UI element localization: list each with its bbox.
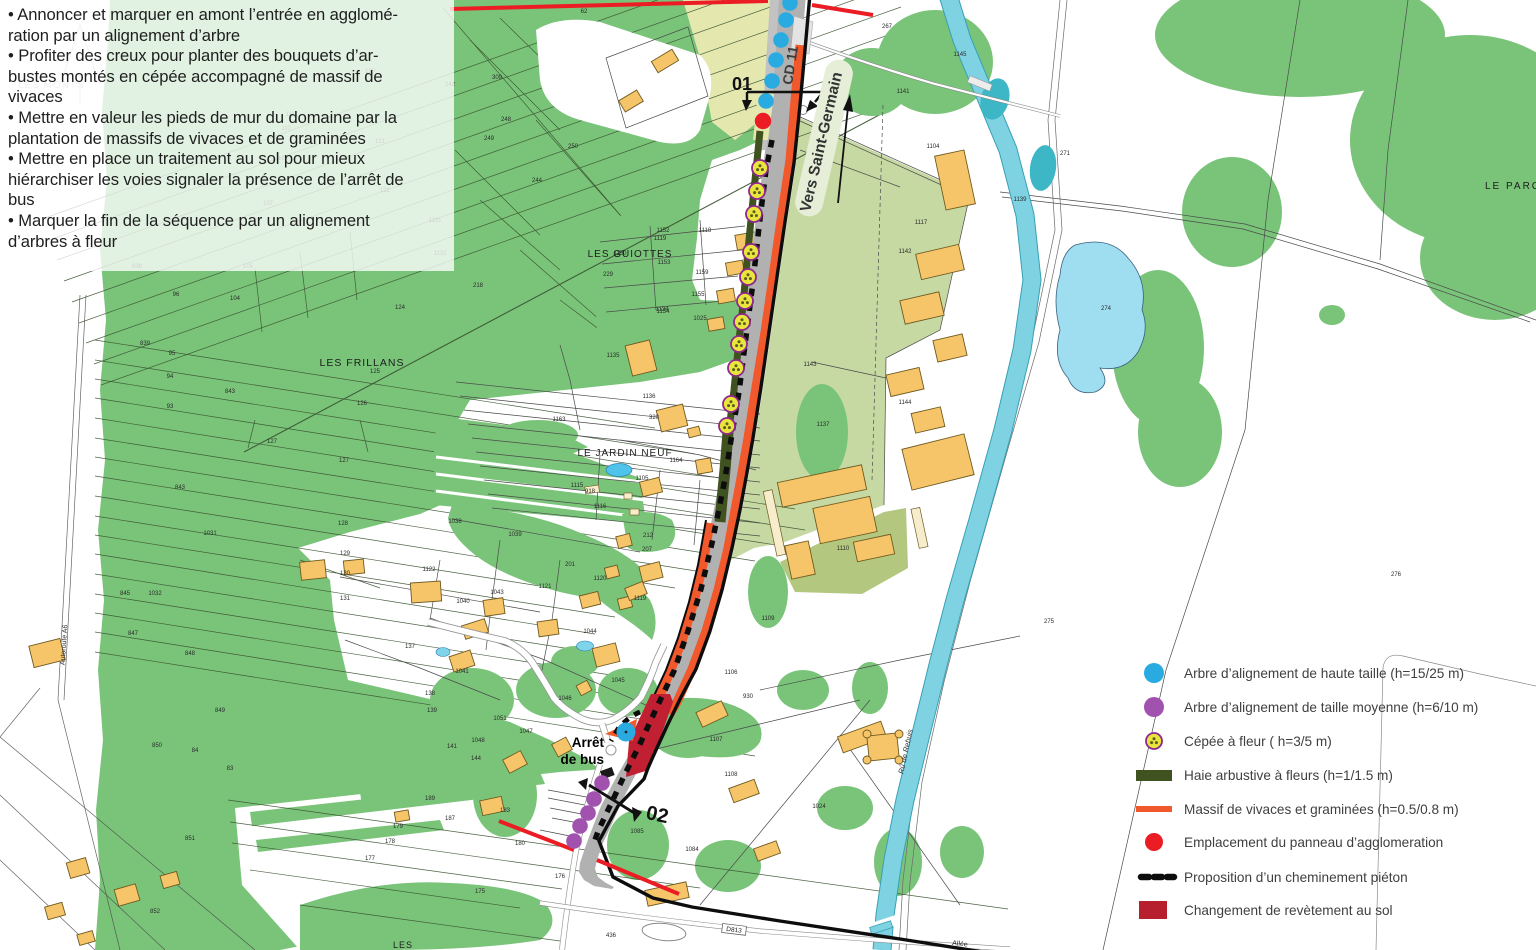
svg-text:1032: 1032 (148, 591, 162, 597)
svg-text:1045: 1045 (611, 678, 625, 684)
svg-text:02: 02 (644, 802, 670, 828)
svg-text:175: 175 (475, 889, 486, 895)
svg-text:1046: 1046 (558, 696, 572, 702)
svg-text:1122: 1122 (423, 567, 437, 573)
svg-text:178: 178 (385, 839, 396, 845)
svg-text:1041: 1041 (455, 669, 469, 675)
svg-text:1164: 1164 (670, 458, 684, 464)
svg-text:1116: 1116 (594, 504, 607, 510)
svg-text:1025: 1025 (693, 316, 707, 322)
svg-text:1143: 1143 (804, 362, 818, 368)
svg-text:1121: 1121 (539, 584, 553, 590)
svg-text:1135: 1135 (607, 353, 621, 359)
svg-text:850: 850 (152, 743, 163, 749)
svg-text:852: 852 (150, 909, 161, 915)
svg-text:LE JARDIN NEUF: LE JARDIN NEUF (577, 448, 672, 459)
svg-text:1051: 1051 (493, 716, 507, 722)
svg-text:918: 918 (585, 489, 596, 495)
svg-text:848: 848 (185, 651, 196, 657)
svg-text:847: 847 (128, 631, 139, 637)
svg-text:1120: 1120 (594, 576, 608, 582)
svg-text:274: 274 (1101, 306, 1112, 312)
svg-text:267: 267 (882, 24, 893, 30)
svg-text:127: 127 (267, 439, 278, 445)
svg-text:93: 93 (167, 404, 174, 410)
svg-text:LES GUIOTTES: LES GUIOTTES (588, 249, 673, 260)
svg-text:Cépée à fleur ( h=3/5 m): Cépée à fleur ( h=3/5 m) (1184, 734, 1332, 749)
svg-text:1150: 1150 (614, 251, 628, 257)
svg-text:1142: 1142 (899, 249, 913, 255)
svg-text:244: 244 (532, 178, 543, 184)
svg-text:96: 96 (173, 292, 180, 298)
svg-text:179: 179 (393, 824, 404, 830)
svg-text:1118: 1118 (699, 228, 712, 234)
svg-text:de bus: de bus (560, 752, 604, 767)
svg-text:144: 144 (471, 756, 482, 762)
svg-text:436: 436 (606, 933, 617, 939)
svg-text:250: 250 (568, 144, 579, 150)
svg-text:275: 275 (1044, 619, 1055, 625)
svg-text:84: 84 (192, 748, 199, 754)
svg-text:LE PARC: LE PARC (1485, 181, 1536, 192)
svg-text:1145: 1145 (954, 52, 968, 58)
svg-text:1043: 1043 (490, 590, 504, 596)
svg-text:LES: LES (393, 940, 413, 950)
svg-text:127: 127 (339, 458, 350, 464)
svg-text:1084: 1084 (685, 847, 699, 853)
svg-text:LES FRILLANS: LES FRILLANS (320, 357, 405, 369)
svg-text:129: 129 (340, 551, 351, 557)
svg-text:1159: 1159 (696, 270, 710, 276)
svg-text:1141: 1141 (897, 89, 911, 95)
svg-text:138: 138 (425, 691, 436, 697)
svg-text:180: 180 (515, 841, 526, 847)
svg-text:839: 839 (140, 341, 151, 347)
svg-text:1134: 1134 (656, 307, 670, 313)
svg-text:1163: 1163 (553, 417, 567, 423)
svg-text:Autoroute A6: Autoroute A6 (60, 624, 70, 665)
svg-text:309: 309 (492, 75, 503, 81)
svg-text:1115: 1115 (571, 483, 584, 489)
svg-text:229: 229 (603, 272, 614, 278)
svg-text:1031: 1031 (203, 531, 217, 537)
svg-text:1152: 1152 (657, 228, 671, 234)
svg-text:851: 851 (185, 836, 196, 842)
svg-text:1153: 1153 (658, 260, 672, 266)
svg-text:1144: 1144 (899, 400, 913, 406)
svg-text:271: 271 (1060, 151, 1071, 157)
svg-text:1108: 1108 (725, 772, 739, 778)
svg-text:1039: 1039 (508, 532, 522, 538)
svg-text:1106: 1106 (725, 670, 739, 676)
svg-text:1155: 1155 (692, 292, 706, 298)
svg-text:1137: 1137 (817, 422, 831, 428)
svg-text:845: 845 (120, 591, 131, 597)
svg-text:104: 104 (230, 296, 241, 302)
svg-text:139: 139 (427, 708, 438, 714)
svg-text:126: 126 (357, 401, 368, 407)
svg-text:137: 137 (405, 644, 416, 650)
svg-text:1044: 1044 (583, 629, 597, 635)
svg-text:1085: 1085 (630, 829, 644, 835)
svg-text:187: 187 (445, 816, 456, 822)
svg-text:124: 124 (395, 305, 406, 311)
svg-text:125: 125 (370, 369, 381, 375)
svg-text:843: 843 (225, 389, 236, 395)
svg-text:183: 183 (500, 808, 511, 814)
svg-text:843: 843 (175, 485, 186, 491)
svg-text:201: 201 (565, 562, 576, 568)
svg-text:1119: 1119 (654, 236, 667, 242)
svg-text:131: 131 (340, 596, 351, 602)
svg-text:94: 94 (167, 374, 174, 380)
svg-text:1048: 1048 (471, 738, 485, 744)
svg-text:83: 83 (227, 766, 234, 772)
svg-text:141: 141 (447, 744, 458, 750)
svg-text:1107: 1107 (710, 737, 724, 743)
svg-text:Arbre d’alignement de haute ta: Arbre d’alignement de haute taille (h=15… (1184, 666, 1464, 681)
svg-text:189: 189 (425, 796, 436, 802)
svg-text:930: 930 (743, 694, 754, 700)
svg-text:218: 218 (473, 283, 484, 289)
svg-text:207: 207 (642, 547, 653, 553)
svg-text:276: 276 (1391, 572, 1402, 578)
svg-text:248: 248 (501, 117, 512, 123)
svg-text:Emplacement du panneau d’agglo: Emplacement du panneau d’agglomeration (1184, 835, 1443, 850)
svg-text:177: 177 (365, 856, 376, 862)
svg-text:1038: 1038 (448, 519, 462, 525)
svg-text:1117: 1117 (915, 220, 928, 226)
svg-text:1119: 1119 (634, 596, 647, 602)
svg-text:1104: 1104 (927, 144, 941, 150)
svg-text:128: 128 (338, 521, 349, 527)
svg-text:1047: 1047 (519, 729, 533, 735)
svg-text:249: 249 (484, 136, 495, 142)
svg-text:01: 01 (732, 74, 752, 94)
svg-text:1110: 1110 (837, 546, 850, 552)
svg-text:1139: 1139 (1014, 197, 1028, 203)
svg-text:Arrêt: Arrêt (572, 735, 605, 750)
svg-text:130: 130 (340, 571, 351, 577)
svg-text:1040: 1040 (456, 599, 470, 605)
svg-text:Massif de vivaces et graminées: Massif de vivaces et graminées (h=0.5/0.… (1184, 802, 1459, 817)
svg-text:1105: 1105 (636, 476, 650, 482)
svg-text:95: 95 (169, 351, 176, 357)
svg-text:849: 849 (215, 708, 226, 714)
svg-text:176: 176 (555, 874, 566, 880)
svg-text:62: 62 (581, 9, 588, 15)
svg-text:1136: 1136 (643, 394, 657, 400)
svg-text:212: 212 (643, 533, 654, 539)
svg-text:Changement de revètement au so: Changement de revètement au sol (1184, 903, 1393, 918)
svg-text:1109: 1109 (762, 616, 776, 622)
svg-text:Proposition d’un cheminement p: Proposition d’un cheminement piéton (1184, 870, 1408, 885)
svg-text:320: 320 (649, 415, 660, 421)
svg-text:Haie arbustive à fleurs (h=1/1: Haie arbustive à fleurs (h=1/1.5 m) (1184, 768, 1393, 783)
svg-text:Arbre d’alignement de taille m: Arbre d’alignement de taille moyenne (h=… (1184, 700, 1478, 715)
svg-text:1024: 1024 (812, 804, 826, 810)
